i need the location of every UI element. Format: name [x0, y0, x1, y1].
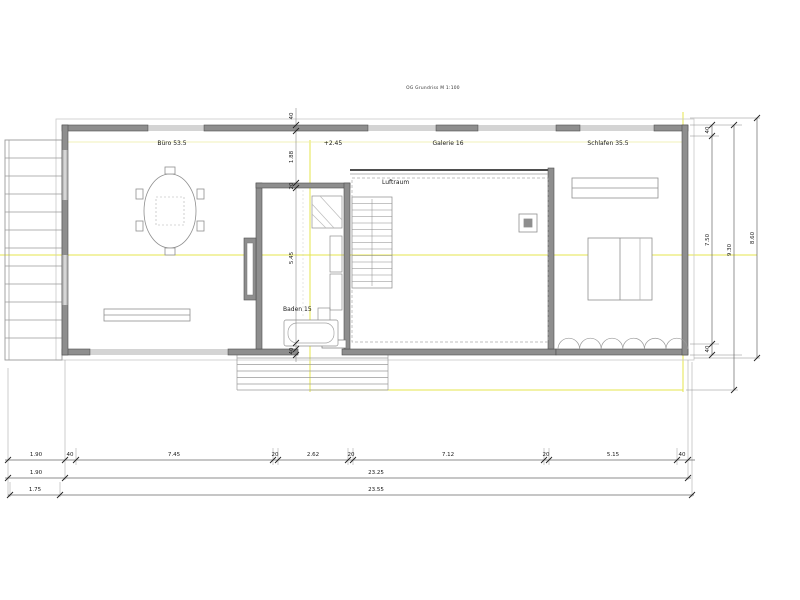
dim-label: 20: [272, 452, 279, 458]
dim-label: 40: [679, 452, 686, 458]
floor-plan-canvas: OG Grundriss M 1:100: [0, 0, 800, 600]
dimension-rows-bottom: 1.90 40 7.45 20 2.62 20 7.12 20 5.15 40 …: [5, 360, 695, 498]
dim-label: 7.12: [442, 452, 454, 458]
dim-label: 5.15: [607, 452, 620, 458]
floor-plan-page: OG Grundriss M 1:100: [0, 0, 800, 600]
exterior-deck: [5, 140, 62, 360]
dim-label: 8.60: [750, 231, 756, 244]
dim-label: 20: [543, 452, 550, 458]
room-label-galerie: Galerie 16: [432, 140, 463, 147]
void-outline: [352, 178, 548, 342]
dim-label: 40: [67, 452, 74, 458]
interior-stairs: [352, 197, 392, 288]
dim-label: 1.90: [30, 452, 43, 458]
dim-label: 1.90: [30, 470, 43, 476]
room-labels: Büro 53.5 +2.45 Galerie 16 Schlafen 35.5…: [157, 140, 628, 313]
room-label-luftraum: Luftraum: [382, 179, 409, 186]
dim-label: 40: [705, 126, 711, 133]
dim-label: 2.62: [307, 452, 319, 458]
gallery-wall: [350, 168, 554, 349]
dim-label: 40: [705, 345, 711, 352]
dim-label: 40: [289, 112, 295, 119]
dim-label: 7.50: [705, 233, 711, 246]
dim-label: 23.25: [368, 470, 384, 476]
dim-label: 9.30: [727, 243, 733, 256]
dim-label: 23.55: [368, 487, 384, 493]
room-label-schlafen: Schlafen 35.5: [587, 140, 628, 147]
dimension-chains-right: 40 7.50 40 9.30 8.60: [686, 115, 760, 393]
room-label-buero: Büro 53.5: [157, 140, 186, 147]
dim-label: 20: [289, 182, 295, 189]
dim-label: 20: [348, 452, 355, 458]
dim-label: 1.88: [289, 150, 295, 163]
dim-label: 5.45: [289, 251, 295, 264]
bath-fixtures: [284, 190, 342, 346]
closet-doors: [558, 338, 688, 349]
drawing-title: OG Grundriss M 1:100: [406, 85, 460, 91]
bedroom-furniture: [519, 178, 658, 300]
room-label-baden: Baden 15: [283, 306, 312, 313]
office-furniture: [104, 167, 204, 321]
dim-label: 7.45: [168, 452, 181, 458]
dim-label: 40: [289, 347, 295, 354]
dim-label: 1.75: [29, 487, 42, 493]
level-label: +2.45: [324, 140, 343, 147]
